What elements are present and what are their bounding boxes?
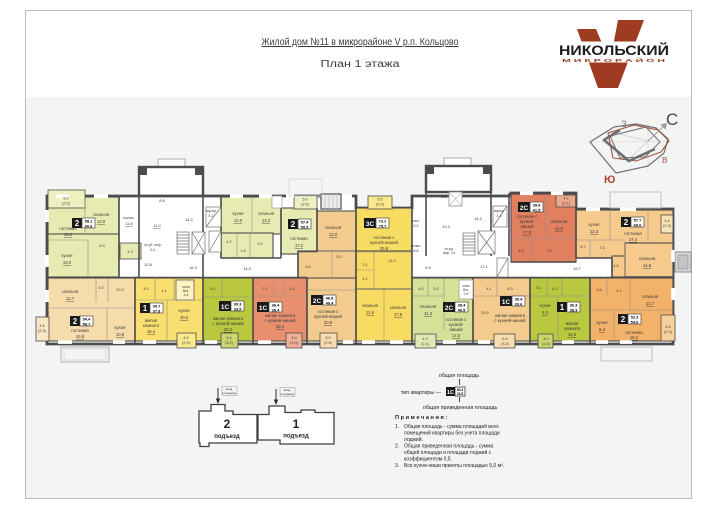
- svg-text:общая приведенная площадь: общая приведенная площадь: [423, 405, 498, 411]
- svg-text:4.0: 4.0: [418, 287, 423, 291]
- svg-text:11.3: 11.3: [424, 311, 433, 316]
- svg-text:6.3: 6.3: [507, 287, 512, 291]
- svg-text:6.4: 6.4: [502, 337, 507, 341]
- svg-text:33.6: 33.6: [515, 301, 524, 306]
- svg-text:4.0: 4.0: [291, 336, 296, 340]
- svg-text:5.2: 5.2: [433, 287, 438, 291]
- svg-text:кухня: кухня: [62, 253, 74, 258]
- svg-text:75.7: 75.7: [379, 223, 388, 228]
- svg-text:гостиная: гостиная: [290, 236, 308, 241]
- svg-text:9.0: 9.0: [257, 242, 262, 246]
- svg-text:33.5: 33.5: [234, 306, 243, 311]
- svg-text:(2.1): (2.1): [562, 202, 571, 206]
- svg-text:мусор: мусор: [206, 209, 216, 213]
- svg-text:11.5: 11.5: [555, 226, 564, 231]
- svg-text:кухня: кухня: [179, 308, 191, 313]
- svg-text:тип квартиры —: тип квартиры —: [401, 390, 442, 396]
- svg-text:(2.3): (2.3): [182, 341, 191, 345]
- svg-text:8.3: 8.3: [441, 194, 446, 199]
- svg-text:кухня: кухня: [540, 303, 552, 308]
- svg-text:12.0: 12.0: [234, 218, 243, 223]
- svg-text:20.9: 20.9: [324, 320, 333, 325]
- svg-text:1: 1: [293, 417, 300, 431]
- svg-text:1С: 1С: [221, 304, 230, 311]
- svg-text:17.0: 17.0: [523, 230, 532, 235]
- svg-text:6.3: 6.3: [552, 287, 557, 291]
- svg-text:33.5: 33.5: [457, 392, 464, 396]
- svg-text:в подъезд: в подъезд: [222, 391, 236, 395]
- svg-text:4.6: 4.6: [665, 325, 670, 329]
- svg-text:4.1: 4.1: [362, 277, 367, 281]
- svg-text:(2.5): (2.5): [62, 202, 71, 206]
- svg-text:2.: 2.: [395, 444, 399, 450]
- svg-text:Общая площадь - сумма площадей: Общая площадь - сумма площадей всех: [404, 423, 499, 430]
- svg-text:16.2: 16.2: [630, 335, 639, 340]
- svg-text:спальня: спальня: [420, 304, 437, 309]
- svg-text:1С: 1С: [447, 390, 454, 396]
- svg-text:4.3: 4.3: [127, 250, 132, 254]
- svg-text:Общая приведенная площадь - су: Общая приведенная площадь - сумма: [404, 444, 494, 450]
- svg-text:41.5: 41.5: [533, 207, 542, 212]
- svg-text:(2.3): (2.3): [663, 224, 672, 228]
- svg-text:16.4: 16.4: [147, 329, 156, 334]
- svg-text:59.5: 59.5: [301, 224, 310, 229]
- svg-text:14.2: 14.2: [185, 217, 193, 222]
- svg-text:5.0: 5.0: [336, 255, 341, 259]
- svg-text:2С: 2С: [520, 205, 529, 212]
- svg-text:3.: 3.: [395, 463, 399, 469]
- svg-text:8.0: 8.0: [305, 265, 310, 269]
- svg-text:4.2: 4.2: [209, 214, 214, 218]
- svg-text:14.0: 14.0: [243, 266, 251, 271]
- svg-text:14.2: 14.2: [474, 216, 482, 221]
- svg-text:общая площадь: общая площадь: [439, 373, 480, 379]
- svg-text:(2.0): (2.0): [542, 342, 551, 346]
- svg-text:11.6: 11.6: [125, 221, 132, 226]
- svg-text:14.5: 14.5: [643, 263, 652, 268]
- svg-text:5.0: 5.0: [377, 198, 382, 202]
- svg-text:6.1: 6.1: [210, 287, 215, 291]
- svg-text:4.0: 4.0: [289, 287, 294, 291]
- svg-text:кл.уб. инф.: кл.уб. инф.: [144, 243, 162, 247]
- svg-text:кухня: кухня: [233, 211, 245, 216]
- svg-text:6.7: 6.7: [580, 245, 585, 249]
- svg-text:2: 2: [224, 417, 231, 431]
- svg-text:4.5: 4.5: [613, 264, 618, 268]
- svg-text:комната: комната: [143, 323, 160, 328]
- svg-text:25.4: 25.4: [276, 324, 285, 329]
- svg-text:4.2: 4.2: [616, 289, 621, 293]
- svg-text:4.2: 4.2: [226, 240, 231, 244]
- svg-text:2: 2: [624, 218, 629, 227]
- svg-text:колис.: колис.: [123, 215, 134, 220]
- svg-text:гостиная: гостиная: [624, 231, 642, 236]
- svg-text:6.4: 6.4: [226, 336, 231, 340]
- svg-text:4.0: 4.0: [143, 287, 148, 291]
- svg-text:3С: 3С: [366, 221, 375, 228]
- svg-text:В: В: [662, 155, 668, 165]
- svg-text:12.3: 12.3: [590, 229, 599, 234]
- svg-text:9.3: 9.3: [542, 310, 549, 315]
- svg-text:4.6: 4.6: [664, 219, 669, 223]
- svg-text:38.3: 38.3: [570, 307, 579, 312]
- svg-text:4.0: 4.0: [98, 286, 103, 290]
- svg-text:1: 1: [560, 303, 565, 312]
- svg-text:с кухней-нишей: с кухней-нишей: [264, 318, 296, 323]
- svg-text:спальня: спальня: [390, 305, 407, 310]
- svg-text:2: 2: [73, 317, 78, 326]
- svg-text:56.7: 56.7: [83, 321, 92, 326]
- svg-text:13.0: 13.0: [329, 232, 338, 237]
- svg-text:8.3: 8.3: [99, 244, 104, 248]
- svg-text:нишей: нишей: [520, 224, 534, 229]
- svg-text:в подъезд: в подъезд: [280, 392, 294, 396]
- svg-text:17.1: 17.1: [480, 264, 488, 269]
- svg-text:8.8: 8.8: [414, 249, 419, 253]
- svg-text:5.0: 5.0: [63, 197, 68, 201]
- svg-text:4.6: 4.6: [183, 336, 188, 340]
- svg-text:4.6: 4.6: [39, 324, 44, 328]
- svg-text:НИКОЛЬСКИЙ: НИКОЛЬСКИЙ: [559, 41, 669, 58]
- svg-text:1С: 1С: [502, 299, 511, 306]
- svg-text:11.0: 11.0: [153, 223, 161, 228]
- svg-text:1.8: 1.8: [240, 249, 245, 253]
- svg-text:16.8: 16.8: [76, 334, 85, 339]
- svg-text:Жилой дом №11 в микрорайоне V: Жилой дом №11 в микрорайоне V р.п. Кольц…: [262, 36, 459, 48]
- svg-text:(2.1): (2.1): [421, 342, 430, 346]
- svg-text:2: 2: [75, 219, 80, 228]
- svg-text:спальня: спальня: [639, 256, 656, 261]
- svg-text:1С: 1С: [259, 305, 268, 312]
- svg-text:спальня: спальня: [93, 212, 110, 217]
- svg-text:2.6: 2.6: [464, 292, 469, 296]
- svg-text:2.4: 2.4: [184, 293, 189, 297]
- svg-text:20.2: 20.2: [224, 327, 233, 332]
- svg-text:конс.: конс.: [412, 219, 420, 223]
- svg-text:коэффициентом 0,5.: коэффициентом 0,5.: [404, 457, 452, 463]
- svg-text:13.0: 13.0: [97, 219, 106, 224]
- svg-text:1: 1: [143, 304, 148, 313]
- svg-text:10.8: 10.8: [116, 332, 125, 337]
- svg-text:10.0: 10.0: [116, 288, 123, 292]
- svg-text:4.1: 4.1: [161, 289, 166, 293]
- svg-text:3.6: 3.6: [596, 288, 601, 292]
- svg-text:кухня: кухня: [115, 325, 127, 330]
- svg-text:4.0: 4.0: [543, 337, 548, 341]
- svg-text:(2.3): (2.3): [38, 329, 47, 333]
- svg-text:инф. 3.4: инф. 3.4: [443, 251, 456, 255]
- svg-text:(2.3): (2.3): [664, 330, 673, 334]
- svg-text:подъезд: подъезд: [283, 434, 309, 440]
- svg-text:4.0: 4.0: [518, 249, 523, 253]
- svg-text:16.5: 16.5: [568, 332, 577, 337]
- svg-text:13.2: 13.2: [262, 218, 271, 223]
- svg-text:подъезд: подъезд: [214, 434, 240, 440]
- svg-text:комната: комната: [564, 326, 581, 331]
- svg-text:7.0: 7.0: [262, 287, 267, 291]
- svg-text:4.2: 4.2: [497, 214, 502, 218]
- svg-text:17.4: 17.4: [629, 237, 638, 242]
- svg-text:8.9: 8.9: [425, 265, 430, 270]
- svg-text:38.4: 38.4: [272, 307, 281, 312]
- svg-text:кухней-нишей: кухней-нишей: [370, 240, 398, 245]
- svg-text:З: З: [621, 119, 627, 130]
- svg-text:16.2: 16.2: [64, 232, 73, 237]
- svg-text:5.1: 5.1: [536, 286, 541, 290]
- svg-text:13.3: 13.3: [442, 224, 450, 229]
- svg-text:20.0: 20.0: [481, 310, 489, 315]
- svg-text:6.2: 6.2: [414, 224, 419, 228]
- svg-text:спальня: спальня: [62, 289, 79, 294]
- svg-text:спальня: спальня: [551, 219, 568, 224]
- svg-text:25.9: 25.9: [380, 246, 389, 251]
- svg-text:колис.: колис.: [411, 244, 421, 248]
- svg-text:кухня: кухня: [589, 222, 601, 227]
- svg-text:кухня: кухня: [597, 320, 609, 325]
- svg-text:17.0: 17.0: [452, 333, 461, 338]
- svg-text:(2.0): (2.0): [290, 341, 299, 345]
- svg-text:нишей: нишей: [449, 327, 463, 332]
- svg-text:16.3: 16.3: [189, 265, 197, 270]
- svg-text:4.2: 4.2: [563, 197, 568, 201]
- svg-text:(3.2): (3.2): [225, 341, 234, 345]
- svg-text:лоджий.: лоджий.: [404, 436, 423, 443]
- svg-text:помещений квартиры без учета п: помещений квартиры без учета площади: [404, 430, 500, 437]
- svg-text:1.: 1.: [395, 424, 399, 430]
- svg-text:12.7: 12.7: [646, 301, 655, 306]
- svg-text:спальня: спальня: [362, 303, 379, 308]
- svg-text:Ю: Ю: [604, 174, 615, 186]
- svg-text:гостиная: гостиная: [71, 328, 89, 333]
- svg-text:49.4: 49.4: [326, 300, 335, 305]
- svg-text:10.8: 10.8: [144, 262, 152, 267]
- svg-text:12.5: 12.5: [366, 310, 375, 315]
- svg-text:60.0: 60.0: [634, 222, 643, 227]
- svg-text:37.8: 37.8: [153, 308, 162, 313]
- svg-text:План 1 этажа: План 1 этажа: [321, 59, 401, 70]
- svg-text:19.7: 19.7: [573, 266, 581, 271]
- svg-text:2С: 2С: [313, 298, 322, 305]
- svg-text:спальня: спальня: [642, 294, 659, 299]
- svg-text:Все кухни-ниши приняты площадь: Все кухни-ниши приняты площадью 5,0 м².: [404, 463, 504, 469]
- svg-text:17.2: 17.2: [295, 243, 304, 248]
- svg-text:Примечания:: Примечания:: [395, 415, 449, 421]
- svg-text:7.2: 7.2: [546, 249, 551, 253]
- svg-text:2: 2: [621, 315, 626, 324]
- svg-text:спальня: спальня: [325, 225, 342, 230]
- svg-text:40.5: 40.5: [458, 307, 467, 312]
- svg-text:17.6: 17.6: [394, 312, 403, 317]
- svg-text:2.1: 2.1: [362, 263, 367, 267]
- svg-text:4.1: 4.1: [486, 287, 491, 291]
- svg-text:с кухней-нишей: с кухней-нишей: [212, 321, 244, 326]
- svg-text:54.6: 54.6: [631, 319, 640, 324]
- svg-text:общей площади и площади лоджий: общей площади и площади лоджий с: [404, 449, 492, 456]
- svg-text:8.8: 8.8: [159, 198, 164, 203]
- svg-text:(2.5): (2.5): [301, 203, 310, 207]
- svg-text:(2.0): (2.0): [376, 203, 385, 207]
- svg-text:13.0: 13.0: [63, 260, 72, 265]
- svg-text:7.3: 7.3: [599, 246, 604, 250]
- svg-text:6.1: 6.1: [151, 248, 156, 252]
- svg-text:2С: 2С: [445, 305, 454, 312]
- svg-text:(3.2): (3.2): [501, 342, 510, 346]
- svg-text:60.6: 60.6: [85, 223, 94, 228]
- svg-text:5.0: 5.0: [302, 198, 307, 202]
- svg-text:11.0: 11.0: [388, 258, 396, 263]
- svg-text:9.4: 9.4: [599, 327, 606, 332]
- svg-text:с кухней-нишей: с кухней-нишей: [494, 318, 526, 323]
- svg-text:10.2: 10.2: [180, 315, 189, 320]
- svg-text:4.2: 4.2: [422, 337, 427, 341]
- svg-text:(2.5): (2.5): [324, 341, 333, 345]
- svg-text:5.0: 5.0: [325, 336, 330, 340]
- svg-text:спальня: спальня: [258, 211, 275, 216]
- svg-text:мусор: мусор: [494, 209, 504, 213]
- svg-text:12.7: 12.7: [66, 296, 75, 301]
- svg-text:кухней-нишей: кухней-нишей: [314, 314, 342, 319]
- svg-text:2: 2: [291, 220, 296, 229]
- svg-text:С: С: [666, 110, 678, 129]
